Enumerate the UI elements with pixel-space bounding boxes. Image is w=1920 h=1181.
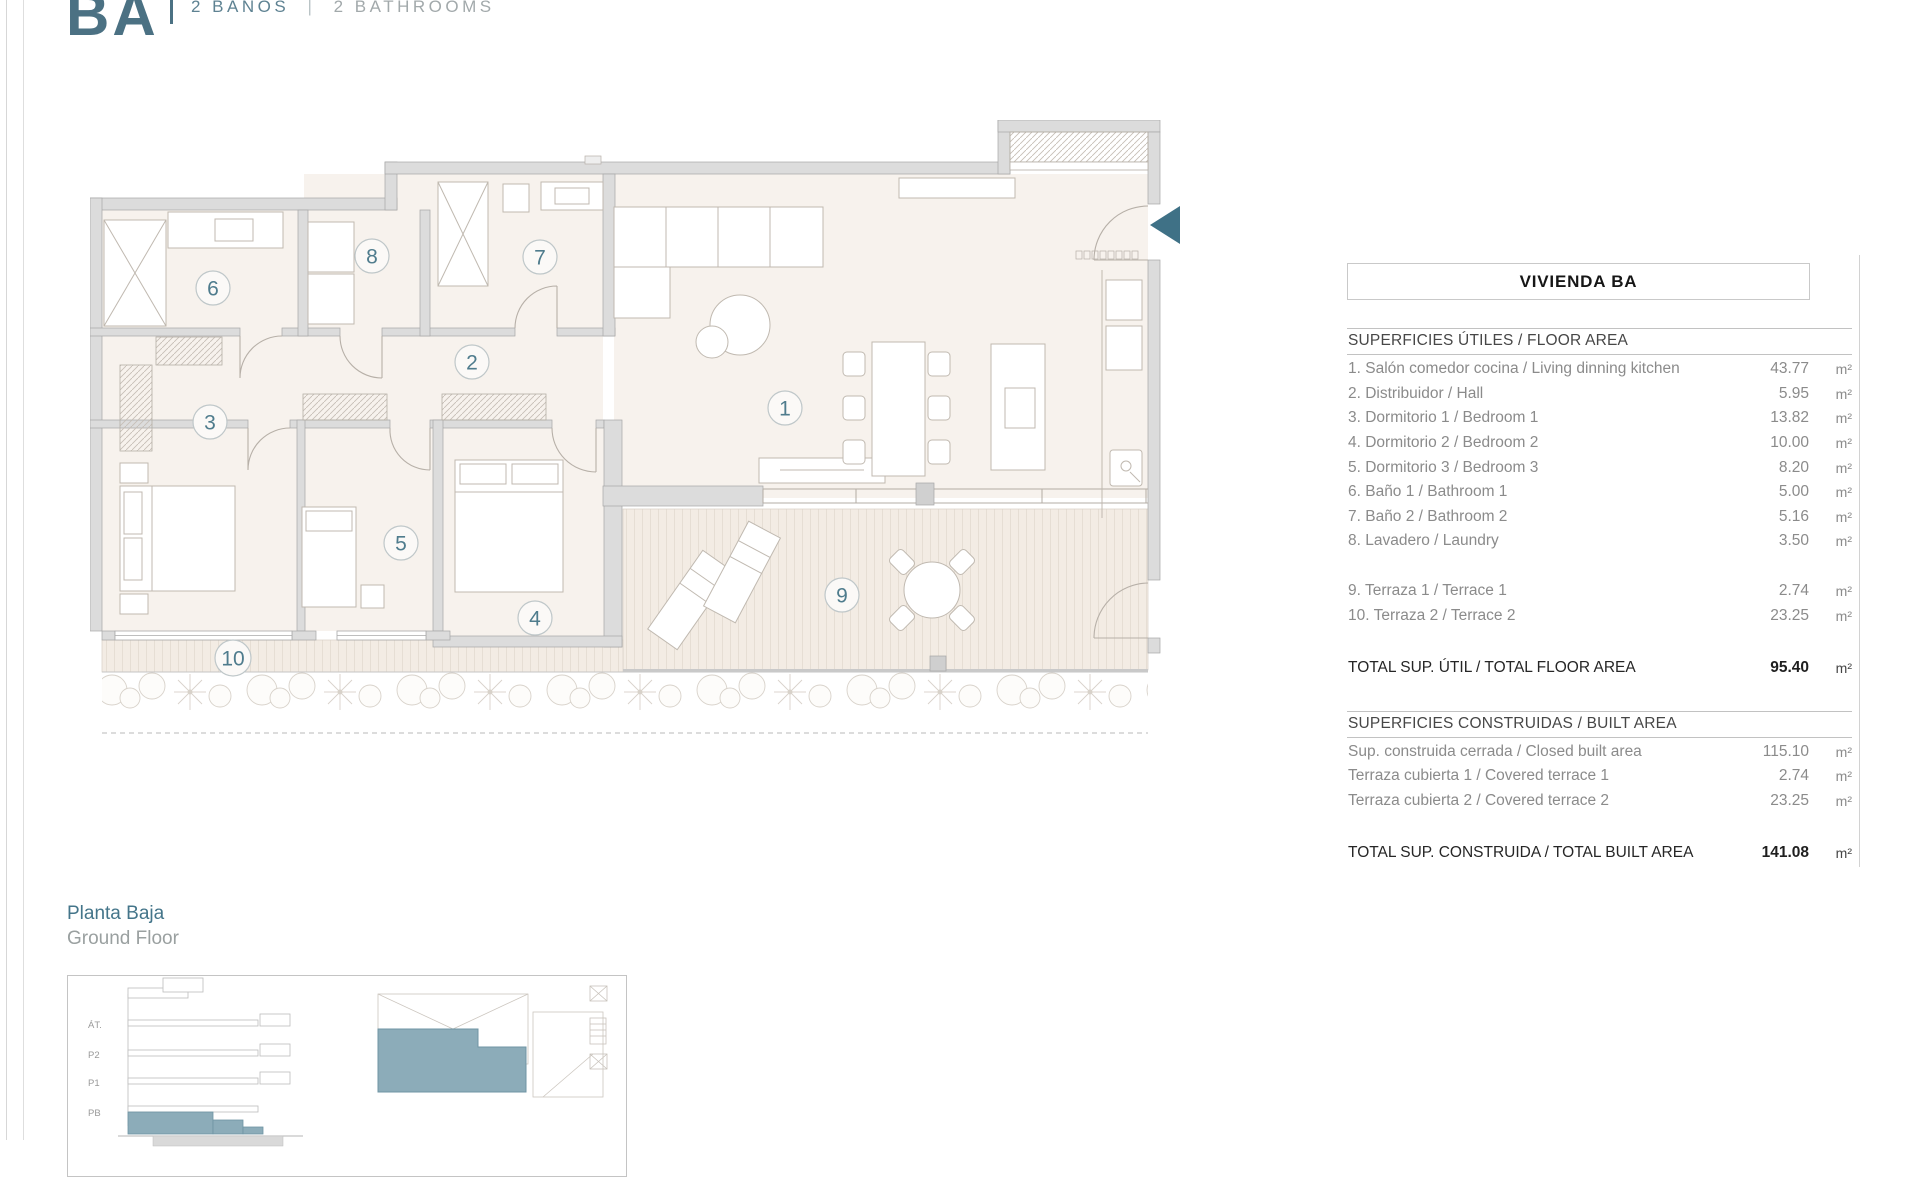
area-row-unit: m²	[1809, 793, 1852, 809]
area-row-unit: m²	[1809, 435, 1852, 451]
built-area-rows: Sup. construida cerrada / Closed built a…	[1347, 740, 1852, 814]
building-section: ÁT. P2 P1 PB	[88, 978, 303, 1146]
built-area-heading: SUPERFICIES CONSTRUIDAS / BUILT AREA	[1347, 711, 1852, 738]
slider-post	[916, 483, 934, 505]
room-number-8: 8	[355, 239, 389, 273]
svg-text:1: 1	[779, 398, 791, 421]
area-row-value: 115.10	[1743, 743, 1809, 761]
room-number-6: 6	[196, 271, 230, 305]
area-row-value: 5.16	[1743, 508, 1809, 526]
area-row: Sup. construida cerrada / Closed built a…	[1347, 740, 1852, 765]
area-row-unit: m²	[1809, 608, 1852, 624]
subtitle-es: 2 BAÑOS	[191, 0, 289, 16]
terrace-post	[930, 656, 946, 671]
subtitle-separator: |	[297, 0, 325, 16]
area-row: 4. Dormitorio 2 / Bedroom 210.00m²	[1347, 431, 1852, 456]
room-number-3: 3	[193, 405, 227, 439]
logo-ba: BA	[66, 0, 159, 49]
total-label: TOTAL SUP. CONSTRUIDA / TOTAL BUILT AREA	[1347, 844, 1743, 862]
area-row-value: 8.20	[1743, 459, 1809, 477]
total-floor-area-row: TOTAL SUP. ÚTIL / TOTAL FLOOR AREA 95.40…	[1347, 656, 1852, 681]
key-site-plan	[378, 986, 607, 1097]
area-row: Terraza cubierta 1 / Covered terrace 12.…	[1347, 764, 1852, 789]
room-number-4: 4	[518, 601, 552, 635]
area-row-unit: m²	[1809, 484, 1852, 500]
svg-text:3: 3	[204, 412, 216, 435]
area-row-unit: m²	[1809, 386, 1852, 402]
windows	[115, 631, 426, 640]
area-row-label: 1. Salón comedor cocina / Living dinning…	[1347, 360, 1743, 378]
svg-text:7: 7	[534, 247, 546, 270]
area-row: 9. Terraza 1 / Terrace 12.74m²	[1347, 579, 1852, 604]
area-row: 10. Terraza 2 / Terrace 223.25m²	[1347, 603, 1852, 628]
room-number-1: 1	[768, 391, 802, 425]
total-value: 141.08	[1743, 844, 1809, 862]
area-row-value: 10.00	[1743, 434, 1809, 452]
plan-sheet-page: { "header": { "logo": "BA", "sub_es": "2…	[0, 0, 1920, 1140]
area-row-value: 43.77	[1743, 360, 1809, 378]
floor-name-en: Ground Floor	[67, 928, 179, 950]
area-row-label: 7. Baño 2 / Bathroom 2	[1347, 508, 1743, 526]
area-row-value: 23.25	[1743, 607, 1809, 625]
svg-text:6: 6	[207, 278, 219, 301]
svg-text:10: 10	[221, 648, 244, 671]
level-label-pb: PB	[88, 1108, 101, 1119]
area-row: 7. Baño 2 / Bathroom 25.16m²	[1347, 505, 1852, 530]
area-row: 1. Salón comedor cocina / Living dinning…	[1347, 357, 1852, 382]
area-row-label: Terraza cubierta 1 / Covered terrace 1	[1347, 767, 1743, 785]
area-row-label: 4. Dormitorio 2 / Bedroom 2	[1347, 434, 1743, 452]
page-right-line	[1859, 255, 1860, 867]
area-row-unit: m²	[1809, 768, 1852, 784]
area-row: 5. Dormitorio 3 / Bedroom 38.20m²	[1347, 455, 1852, 480]
area-row: 3. Dormitorio 1 / Bedroom 113.82m²	[1347, 406, 1852, 431]
room-number-2: 2	[455, 345, 489, 379]
total-label: TOTAL SUP. ÚTIL / TOTAL FLOOR AREA	[1347, 659, 1743, 677]
area-row-value: 3.50	[1743, 532, 1809, 550]
level-label-atico: ÁT.	[88, 1020, 102, 1031]
room-number-7: 7	[523, 240, 557, 274]
area-row-value: 5.95	[1743, 385, 1809, 403]
area-row-label: 9. Terraza 1 / Terrace 1	[1347, 582, 1743, 600]
total-built-area-row: TOTAL SUP. CONSTRUIDA / TOTAL BUILT AREA…	[1347, 840, 1852, 865]
svg-text:9: 9	[836, 585, 848, 608]
unit-title-box: VIVIENDA BA	[1347, 263, 1810, 300]
subtitle-en: 2 BATHROOMS	[334, 0, 495, 16]
level-label-p2: P2	[88, 1050, 100, 1061]
area-row: 8. Lavadero / Laundry3.50m²	[1347, 529, 1852, 554]
area-row-unit: m²	[1809, 410, 1852, 426]
area-row-label: 2. Distribuidor / Hall	[1347, 385, 1743, 403]
svg-text:5: 5	[395, 533, 407, 556]
area-row-value: 13.82	[1743, 409, 1809, 427]
area-row-label: 5. Dormitorio 3 / Bedroom 3	[1347, 459, 1743, 477]
sheet-subtitle: 2 BAÑOS | 2 BATHROOMS	[191, 0, 495, 17]
planting-strip	[102, 672, 1148, 733]
page-edge-line-2	[23, 0, 24, 1140]
area-row-label: 6. Baño 1 / Bathroom 1	[1347, 483, 1743, 501]
floor-area-heading: SUPERFICIES ÚTILES / FLOOR AREA	[1347, 328, 1852, 355]
area-row-unit: m²	[1809, 744, 1852, 760]
floor-name-es: Planta Baja	[67, 903, 164, 925]
highlight-ground-floor	[128, 1112, 263, 1134]
area-row: Terraza cubierta 2 / Covered terrace 223…	[1347, 789, 1852, 814]
area-row-unit: m²	[1809, 509, 1852, 525]
svg-text:8: 8	[366, 246, 378, 269]
area-table: VIVIENDA BA SUPERFICIES ÚTILES / FLOOR A…	[1347, 263, 1852, 865]
total-unit: m²	[1809, 845, 1852, 861]
area-row-value: 2.74	[1743, 767, 1809, 785]
bedroom-1-furniture	[120, 463, 235, 614]
level-label-p1: P1	[88, 1078, 100, 1089]
svg-text:2: 2	[466, 352, 478, 375]
area-row-label: 8. Lavadero / Laundry	[1347, 532, 1743, 550]
area-row-unit: m²	[1809, 583, 1852, 599]
floor-area-rows: 1. Salón comedor cocina / Living dinning…	[1347, 357, 1852, 554]
total-value: 95.40	[1743, 659, 1809, 677]
area-row-value: 2.74	[1743, 582, 1809, 600]
area-row-value: 23.25	[1743, 792, 1809, 810]
area-row-label: 10. Terraza 2 / Terrace 2	[1347, 607, 1743, 625]
terrace-parapet	[623, 669, 1148, 672]
logo-divider	[170, 0, 173, 24]
area-row: 6. Baño 1 / Bathroom 15.00m²	[1347, 480, 1852, 505]
room-number-10: 10	[215, 640, 251, 676]
terrace-rows: 9. Terraza 1 / Terrace 12.74m² 10. Terra…	[1347, 579, 1852, 628]
area-row-unit: m²	[1809, 533, 1852, 549]
room-number-9: 9	[825, 578, 859, 612]
wall-vent	[585, 156, 601, 164]
area-row-unit: m²	[1809, 361, 1852, 377]
total-unit: m²	[1809, 660, 1852, 676]
page-edge-line	[6, 0, 7, 1140]
area-row-value: 5.00	[1743, 483, 1809, 501]
area-row-unit: m²	[1809, 460, 1852, 476]
area-row-label: Terraza cubierta 2 / Covered terrace 2	[1347, 792, 1743, 810]
svg-text:4: 4	[529, 608, 541, 631]
bedroom-2-furniture	[455, 460, 563, 592]
entrance-arrow-icon	[1150, 206, 1180, 244]
floor-plan: 1 2 3 4 5 6 7 8 9 10	[90, 120, 1180, 745]
key-plan-box: ÁT. P2 P1 PB	[67, 975, 627, 1177]
key-plan-svg: ÁT. P2 P1 PB	[68, 976, 626, 1176]
area-row-label: Sup. construida cerrada / Closed built a…	[1347, 743, 1743, 761]
area-row-label: 3. Dormitorio 1 / Bedroom 1	[1347, 409, 1743, 427]
area-row: 2. Distribuidor / Hall5.95m²	[1347, 382, 1852, 407]
room-number-5: 5	[384, 526, 418, 560]
floor-plan-svg: 1 2 3 4 5 6 7 8 9 10	[90, 120, 1180, 740]
